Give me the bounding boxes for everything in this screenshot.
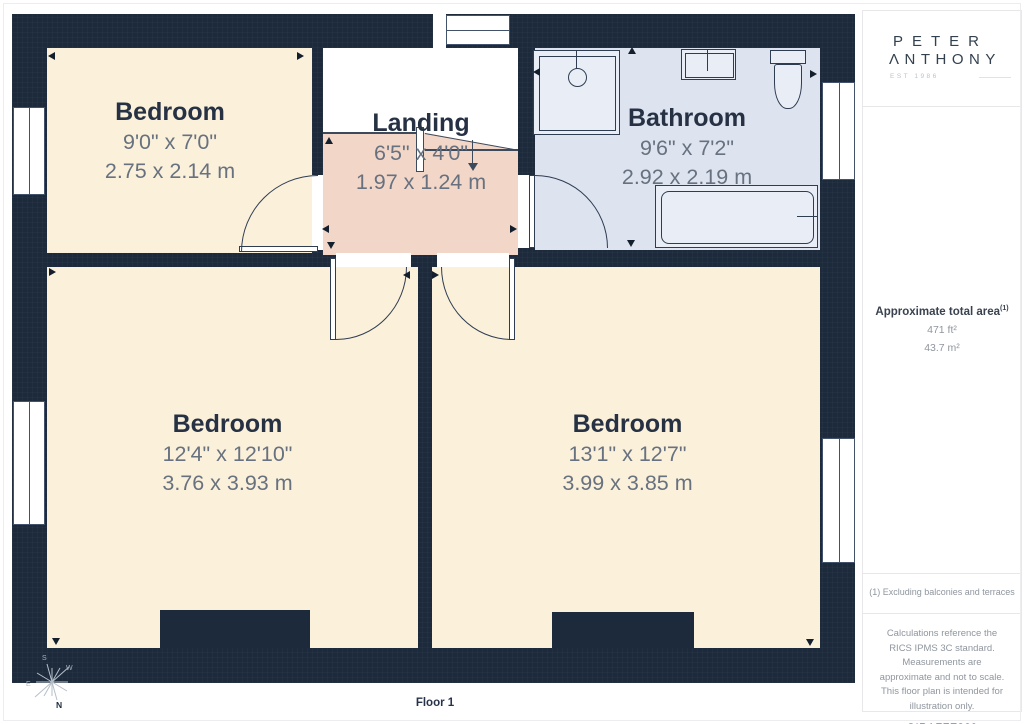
marker-arrow-icon [403,271,410,279]
room-dim-imperial: 13'1" x 12'7" [480,440,775,469]
marker-arrow-icon [810,70,817,78]
total-area-metric: 43.7 m² [863,342,1021,354]
room-label-bathroom: Bathroom 9'6" x 7'2" 2.92 x 2.19 m [567,102,807,192]
room-label-bedroom-top-left: Bedroom 9'0" x 7'0" 2.75 x 2.14 m [60,96,280,186]
sink-basin [685,53,734,78]
bathtub-tap [797,216,817,217]
room-dim-metric: 1.97 x 1.24 m [330,168,512,197]
marker-arrow-icon [52,638,60,645]
marker-arrow-icon [510,225,517,233]
marker-arrow-icon [327,242,335,249]
marker-arrow-icon [806,639,814,646]
window [822,82,855,180]
info-sidebar: PETER ΛNTHONY EST 1986 Approximate total… [862,10,1022,712]
window [822,438,855,563]
marker-arrow-icon [49,268,56,276]
floor-label: Floor 1 [385,697,485,709]
room-dim-metric: 2.92 x 2.19 m [567,163,807,192]
compass-south-label: S [42,655,47,662]
room-dim-metric: 3.99 x 3.85 m [480,469,775,498]
marker-arrow-icon [628,47,636,54]
marker-arrow-icon [432,271,439,279]
brand-tagline: EST 1986 [890,73,939,80]
room-title: Bedroom [60,96,280,128]
disclaimer-panel: Calculations reference the RICS IPMS 3C … [863,627,1021,724]
floorplan-page: Bedroom 9'0" x 7'0" 2.75 x 2.14 m Landin… [0,0,1024,724]
chimney-breast-left [160,610,310,648]
window-pane-divider [839,439,840,562]
total-area-title-text: Approximate total area [875,306,1000,318]
room-dim-imperial: 12'4" x 12'10" [80,440,375,469]
window [446,15,510,45]
footnote-panel: (1) Excluding balconies and terraces [863,574,1021,614]
toilet-cistern [770,50,806,64]
room-dim-imperial: 6'5" x 4'0" [330,139,512,168]
total-area-title: Approximate total area(1) [863,305,1021,318]
room-dim-metric: 2.75 x 2.14 m [60,157,280,186]
marker-arrow-icon [48,52,55,60]
room-title: Bedroom [480,408,775,440]
area-panel: Approximate total area(1) 471 ft² 43.7 m… [863,107,1021,574]
marker-arrow-icon [533,68,540,76]
brand-name-line1: PETER [893,33,988,50]
total-area-imperial: 471 ft² [863,324,1021,336]
disclaimer-text: Calculations reference the RICS IPMS 3C … [875,627,1009,714]
brand-logo: PETER ΛNTHONY EST 1986 [863,11,1021,107]
stairwell-wall-opening [433,14,446,48]
window-pane-divider [29,108,30,194]
shower-drain [568,68,587,87]
bathtub-inner [661,191,814,244]
marker-arrow-icon [322,225,329,233]
sink-tap [707,49,708,71]
brand-name-line2: ΛNTHONY [889,51,1001,68]
window-pane-divider [839,83,840,179]
room-label-bedroom-bottom-left: Bedroom 12'4" x 12'10" 3.76 x 3.93 m [80,408,375,498]
room-label-bedroom-bottom-right: Bedroom 13'1" x 12'7" 3.99 x 3.85 m [480,408,775,498]
window [13,401,45,525]
window [13,107,45,195]
room-dim-imperial: 9'6" x 7'2" [567,134,807,163]
brand-rule [979,77,1011,78]
room-dim-metric: 3.76 x 3.93 m [80,469,375,498]
window-pane-divider [447,30,509,31]
footnote-text: (1) Excluding balconies and terraces [863,574,1021,597]
door-opening [336,253,411,267]
door-opening [437,253,509,267]
marker-arrow-icon [297,52,304,60]
compass-east-label: E [26,681,31,688]
room-title: Bedroom [80,408,375,440]
room-title: Landing [330,107,512,139]
window-pane-divider [29,402,30,524]
room-dim-imperial: 9'0" x 7'0" [60,128,280,157]
marker-arrow-icon [627,240,635,247]
shower-pipe [576,50,577,69]
chimney-breast-right [552,612,694,648]
room-label-landing: Landing 6'5" x 4'0" 1.97 x 1.24 m [330,107,512,197]
total-area-footnote-ref: (1) [1000,305,1009,312]
compass-icon: S W E N [16,646,86,716]
compass-north-label: N [56,700,62,710]
compass-west-label: W [66,665,73,672]
room-title: Bathroom [567,102,807,134]
